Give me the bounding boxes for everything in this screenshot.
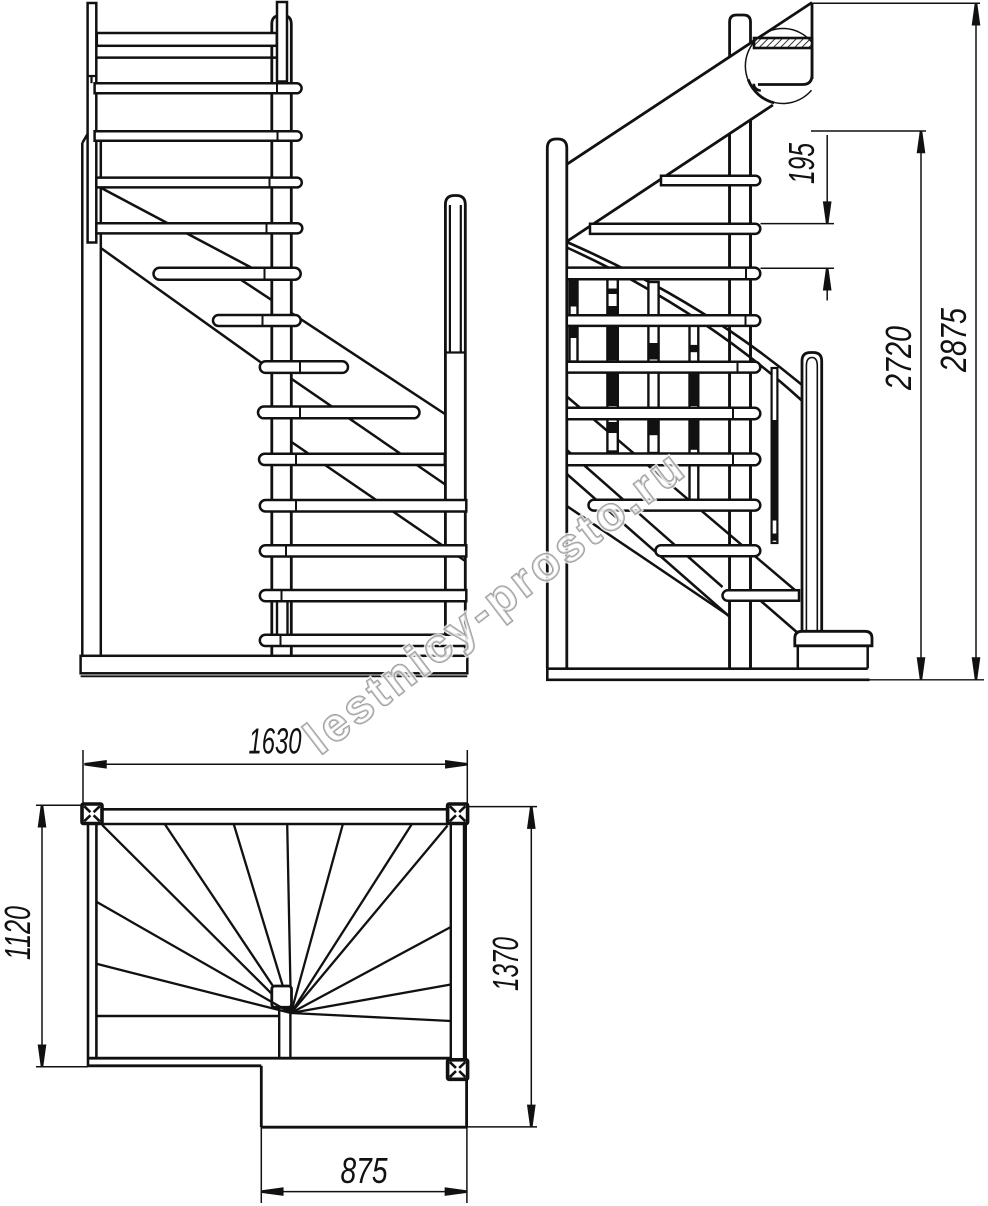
svg-text:1370: 1370 — [485, 937, 526, 991]
svg-text:875: 875 — [341, 1150, 389, 1191]
svg-text:2875: 2875 — [933, 307, 974, 373]
svg-text:1630: 1630 — [249, 721, 302, 762]
svg-text:195: 195 — [781, 142, 822, 184]
svg-text:1120: 1120 — [0, 906, 38, 960]
svg-text:2720: 2720 — [878, 326, 919, 391]
